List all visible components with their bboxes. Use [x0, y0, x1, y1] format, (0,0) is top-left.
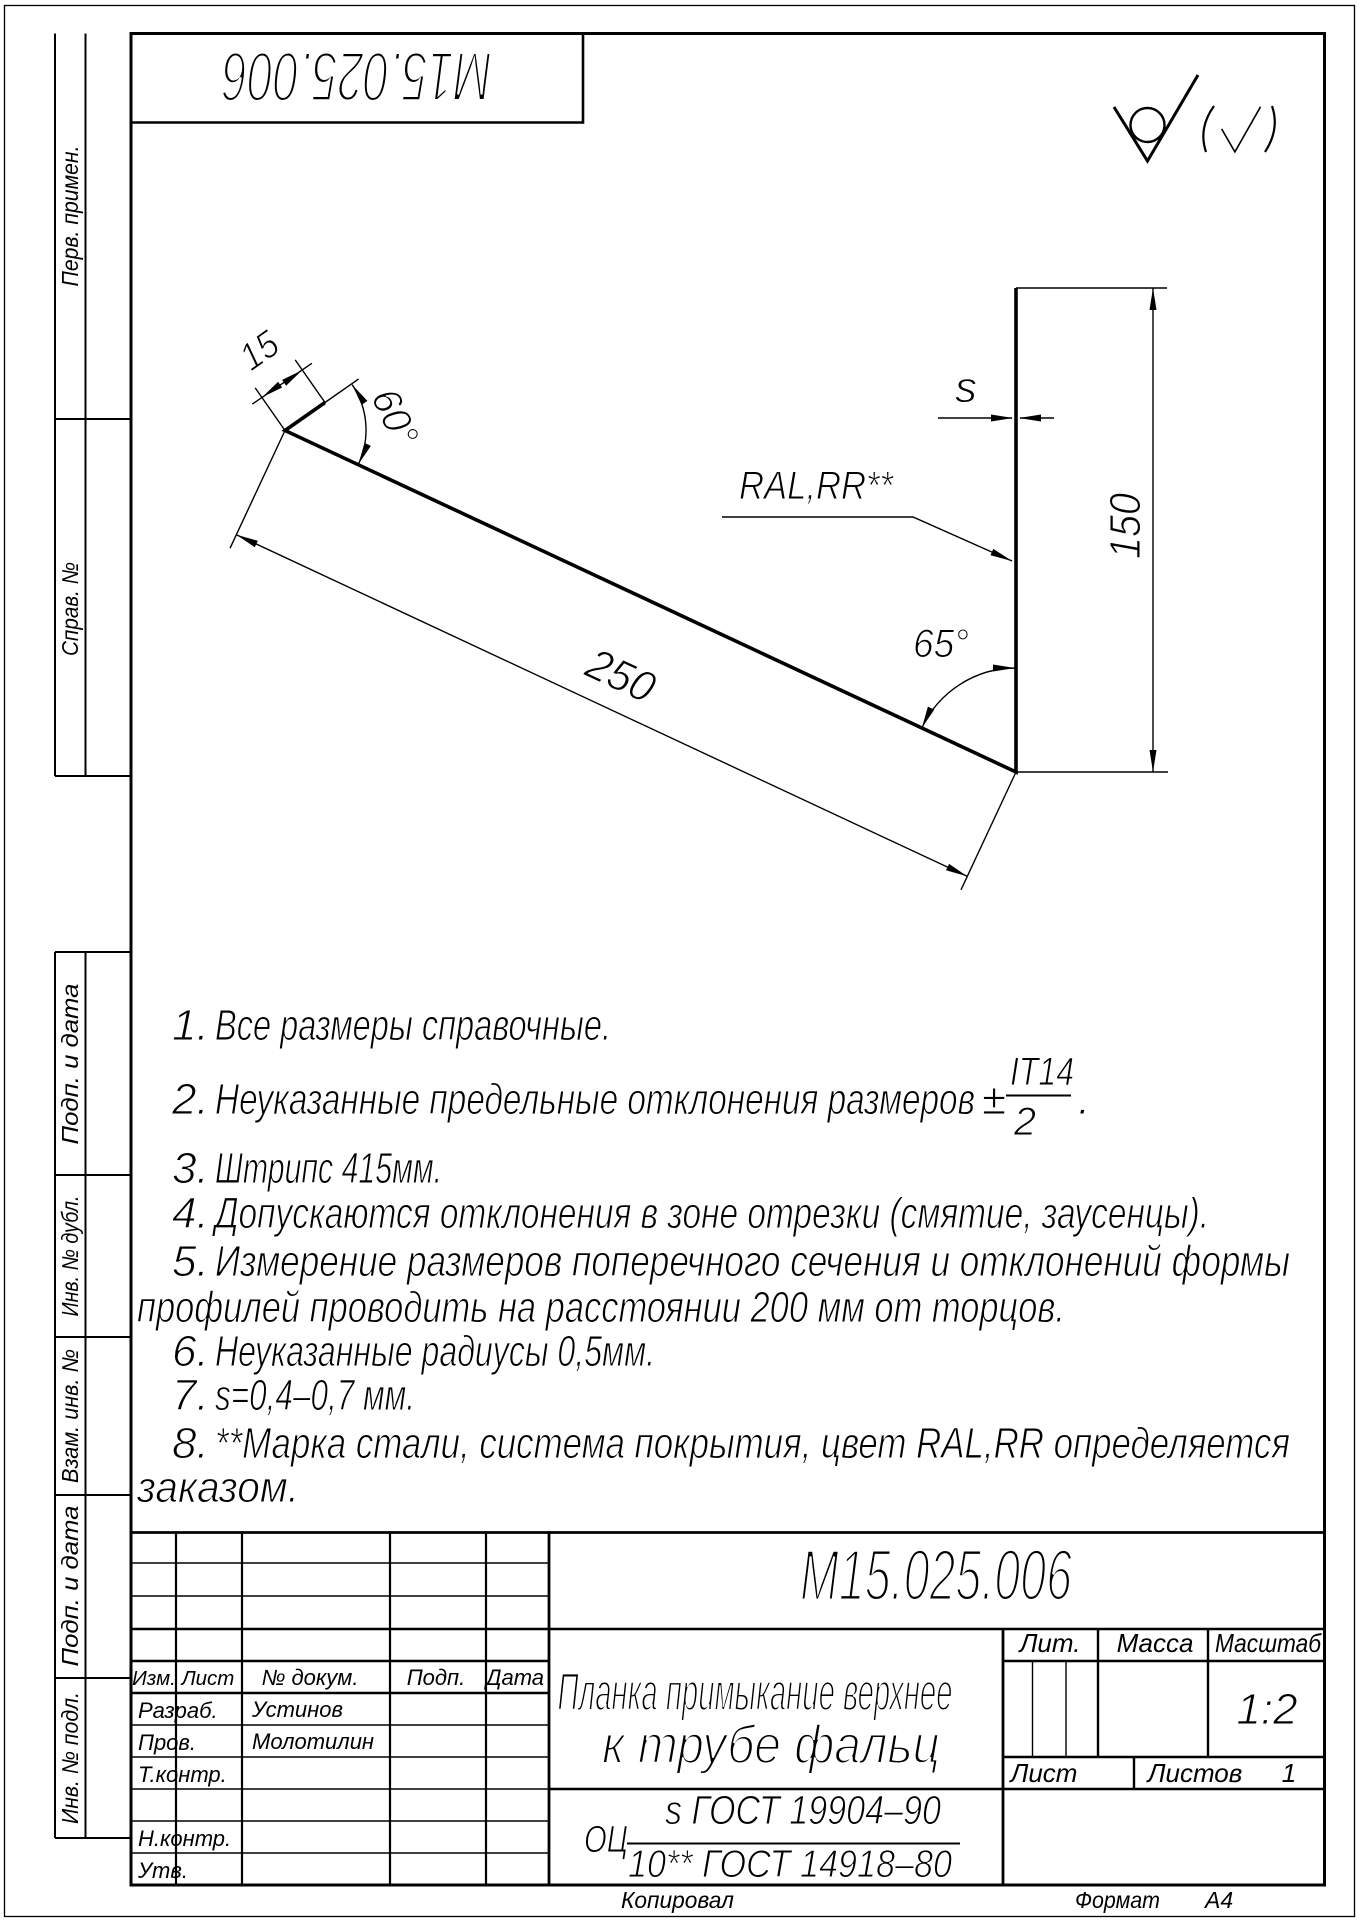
svg-text:1:2: 1:2	[1236, 1685, 1297, 1734]
svg-text:s: s	[955, 363, 977, 412]
svg-text:Пров.: Пров.	[138, 1730, 196, 1755]
svg-text:Устинов: Устинов	[251, 1697, 343, 1722]
svg-text:2: 2	[1013, 1100, 1036, 1144]
svg-text:4.: 4.	[172, 1189, 209, 1238]
svg-text:Разраб.: Разраб.	[138, 1698, 218, 1723]
svg-text:Штрипс 415мм.: Штрипс 415мм.	[215, 1144, 442, 1193]
svg-text:**Марка стали, система покрыти: **Марка стали, система покрытия, цвет RA…	[215, 1419, 1290, 1468]
svg-text:Перв. примен.: Перв. примен.	[57, 146, 83, 287]
svg-text:Н.контр.: Н.контр.	[138, 1826, 231, 1851]
svg-text:Измерение размеров поперечного: Измерение размеров поперечного сечения и…	[215, 1237, 1290, 1286]
svg-text:5.: 5.	[172, 1237, 209, 1286]
svg-text:Изм.: Изм.	[132, 1667, 176, 1690]
svg-text:.: .	[1078, 1075, 1090, 1124]
svg-text:IT14: IT14	[1010, 1050, 1074, 1094]
svg-text:±: ±	[982, 1075, 1006, 1124]
svg-text:1.: 1.	[172, 1001, 209, 1050]
svg-text:к трубе фальц: к трубе фальц	[602, 1715, 940, 1775]
svg-text:6.: 6.	[172, 1327, 209, 1376]
svg-text:Неуказанные радиусы 0,5мм.: Неуказанные радиусы 0,5мм.	[215, 1327, 655, 1376]
svg-text:А4: А4	[1203, 1887, 1233, 1913]
svg-text:Все размеры справочные.: Все размеры справочные.	[215, 1001, 611, 1050]
svg-text:RAL,RR**: RAL,RR**	[739, 464, 894, 508]
svg-text:Лист: Лист	[180, 1667, 235, 1690]
svg-text:Подп.: Подп.	[407, 1665, 466, 1690]
svg-text:Инв. № подл.: Инв. № подл.	[57, 1692, 83, 1824]
svg-text:10** ГОСТ 14918–80: 10** ГОСТ 14918–80	[628, 1843, 952, 1886]
svg-text:Дата: Дата	[483, 1665, 544, 1690]
svg-text:150: 150	[1101, 493, 1150, 559]
svg-text:Копировал: Копировал	[621, 1887, 734, 1913]
svg-text:Подп. и дата: Подп. и дата	[57, 984, 83, 1145]
svg-text:2.: 2.	[171, 1075, 209, 1124]
svg-text:Лист: Лист	[1009, 1758, 1078, 1788]
svg-text:3.: 3.	[172, 1144, 209, 1193]
svg-text:s ГОСТ 19904–90: s ГОСТ 19904–90	[665, 1787, 941, 1833]
svg-text:М15.025.006: М15.025.006	[222, 38, 492, 116]
svg-text:s=0,4–0,7 мм.: s=0,4–0,7 мм.	[215, 1371, 415, 1420]
svg-text:М15.025.006: М15.025.006	[800, 1536, 1073, 1616]
svg-text:65°: 65°	[913, 622, 969, 666]
svg-text:1: 1	[1282, 1758, 1296, 1788]
svg-text:профилей проводить на расстоян: профилей проводить на расстоянии 200 мм …	[137, 1283, 1065, 1332]
svg-text:7.: 7.	[172, 1371, 209, 1420]
svg-text:Молотилин: Молотилин	[252, 1729, 374, 1754]
svg-text:Неуказанные предельные отклоне: Неуказанные предельные отклонения размер…	[215, 1075, 975, 1124]
svg-text:Листов: Листов	[1146, 1758, 1243, 1788]
svg-text:Справ. №: Справ. №	[57, 562, 83, 656]
svg-text:Подп. и дата: Подп. и дата	[57, 1506, 83, 1667]
svg-text:Допускаются отклонения в зоне: Допускаются отклонения в зоне отрезки (с…	[211, 1189, 1209, 1238]
svg-text:Инв. № дубл.: Инв. № дубл.	[57, 1196, 83, 1317]
svg-text:Масса: Масса	[1117, 1628, 1194, 1658]
svg-text:8.: 8.	[172, 1419, 209, 1468]
svg-text:Взам. инв. №: Взам. инв. №	[57, 1349, 83, 1483]
svg-text:Масштаб: Масштаб	[1215, 1628, 1322, 1658]
svg-text:№ докум.: № докум.	[262, 1665, 359, 1690]
svg-text:заказом.: заказом.	[136, 1463, 299, 1512]
svg-text:ОЦ: ОЦ	[584, 1819, 628, 1861]
svg-text:Формат: Формат	[1075, 1887, 1160, 1913]
svg-text:Планка примыкание верхнее: Планка примыкание верхнее	[558, 1663, 953, 1722]
svg-text:Т.контр.: Т.контр.	[138, 1762, 227, 1787]
svg-text:Лит.: Лит.	[1018, 1628, 1081, 1658]
svg-text:Утв.: Утв.	[137, 1858, 188, 1883]
